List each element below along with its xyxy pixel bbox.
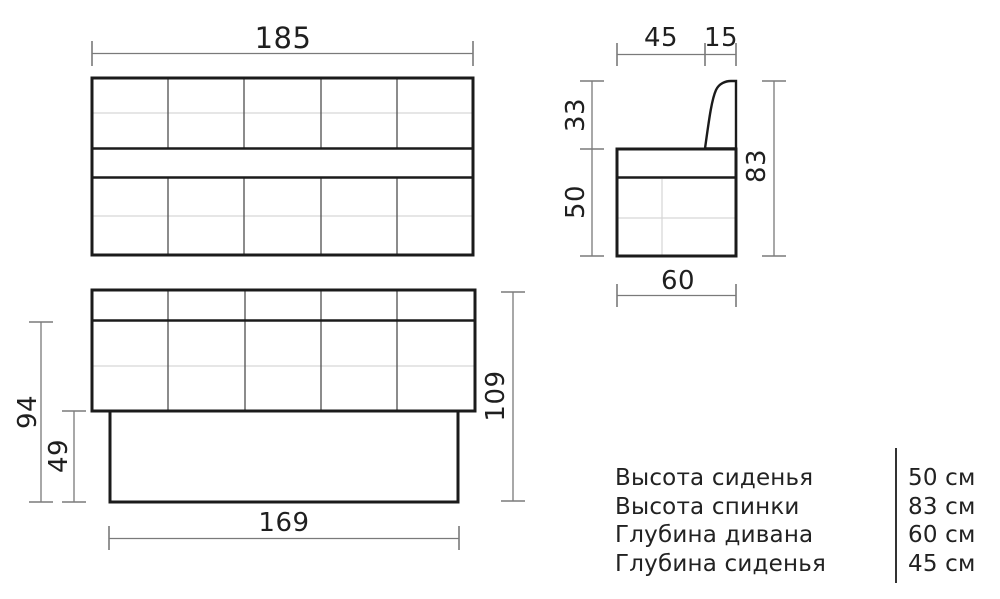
spec-label-sofa-depth: Глубина дивана: [615, 522, 908, 548]
base-width-dim-label: 169: [258, 508, 309, 538]
side-total-height-dimension: 83: [742, 81, 786, 256]
total-height-dim-label: 83: [742, 149, 772, 183]
front-view: 185: [92, 21, 473, 255]
base-height-dimension: 49: [44, 411, 86, 502]
seat-height-dim-label: 50: [561, 185, 591, 219]
upper-height-dimension: 94: [13, 322, 53, 502]
base-box: [110, 411, 458, 502]
side-left-dimensions: 33 50: [561, 81, 604, 256]
upper-height-dim-label: 94: [13, 395, 43, 429]
spec-label-back-height: Высота спинки: [615, 494, 908, 520]
side-depth-split-dimension: 45 15: [617, 23, 738, 66]
spec-value-seat-depth: 45 см: [908, 551, 976, 577]
backrest-profile: [705, 81, 736, 149]
front-width-dim-label: 185: [255, 21, 312, 55]
backrest-above-seat-dim-label: 33: [561, 98, 591, 132]
seat-depth-dim-label: 45: [644, 23, 678, 53]
sofa-dimensions-drawing: 185 45 15: [0, 0, 1000, 599]
side-depth-dimension: 60: [617, 266, 736, 307]
specs-table: Высота сиденья 50 см Высота спинки 83 см…: [615, 464, 976, 578]
spec-label-seat-height: Высота сиденья: [615, 465, 908, 491]
base-width-dimension: 169: [109, 508, 459, 550]
side-view: 45 15 33 50 83: [561, 23, 786, 307]
lower-total-height-dim-label: 109: [481, 370, 511, 421]
base-height-dim-label: 49: [44, 439, 74, 473]
spec-label-seat-depth: Глубина сиденья: [615, 551, 908, 577]
spec-value-seat-height: 50 см: [908, 465, 976, 491]
spec-value-sofa-depth: 60 см: [908, 522, 976, 548]
lower-view: 94 49 109 169: [13, 290, 525, 550]
lower-total-height-dimension: 109: [481, 292, 525, 501]
backrest-thickness-dim-label: 15: [704, 23, 738, 53]
front-width-dimension: 185: [92, 21, 473, 66]
spec-value-back-height: 83 см: [908, 494, 976, 520]
total-depth-dim-label: 60: [661, 266, 695, 296]
